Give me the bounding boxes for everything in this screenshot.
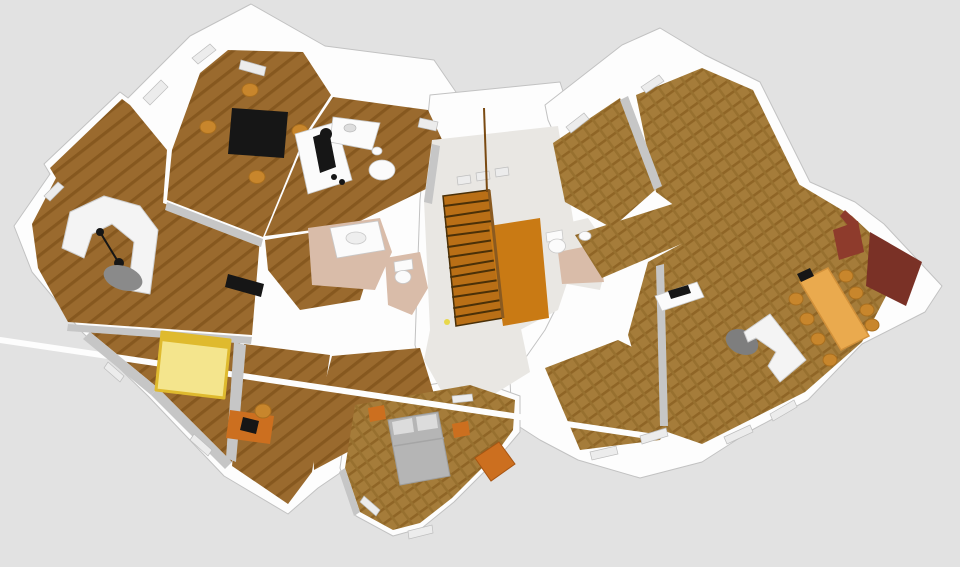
- pillow: [416, 414, 438, 431]
- toilet-2: [549, 239, 566, 253]
- round-table: [369, 160, 395, 180]
- meeting-chair: [865, 319, 879, 331]
- kitchen-sink: [344, 124, 356, 132]
- dining-chair: [200, 121, 216, 134]
- meeting-chair: [860, 304, 874, 316]
- meeting-chair: [839, 270, 853, 282]
- sink-2: [579, 232, 591, 241]
- side-table: [372, 147, 382, 155]
- floorplan-canvas: [0, 0, 960, 567]
- cooktop-burner: [331, 174, 337, 180]
- kitchen-stool-back: [320, 128, 332, 140]
- office-chair: [255, 404, 271, 418]
- dining-chair: [249, 171, 265, 184]
- meeting-chair: [849, 287, 863, 299]
- meeting-chair: [823, 354, 837, 366]
- meeting-chair: [789, 293, 803, 305]
- nightstand: [452, 421, 470, 438]
- window: [476, 171, 490, 181]
- window: [452, 394, 473, 403]
- toilet: [395, 271, 411, 284]
- cooktop-burner: [339, 179, 345, 185]
- nightstand: [368, 405, 386, 422]
- dining-table: [228, 108, 288, 158]
- meeting-chair: [800, 313, 814, 325]
- washbasin: [346, 232, 366, 244]
- window: [457, 175, 471, 185]
- window: [495, 167, 509, 177]
- floor-lamp-shade: [96, 228, 104, 236]
- dining-chair: [242, 84, 258, 97]
- meeting-chair: [811, 333, 825, 345]
- entry-marker: [444, 319, 450, 325]
